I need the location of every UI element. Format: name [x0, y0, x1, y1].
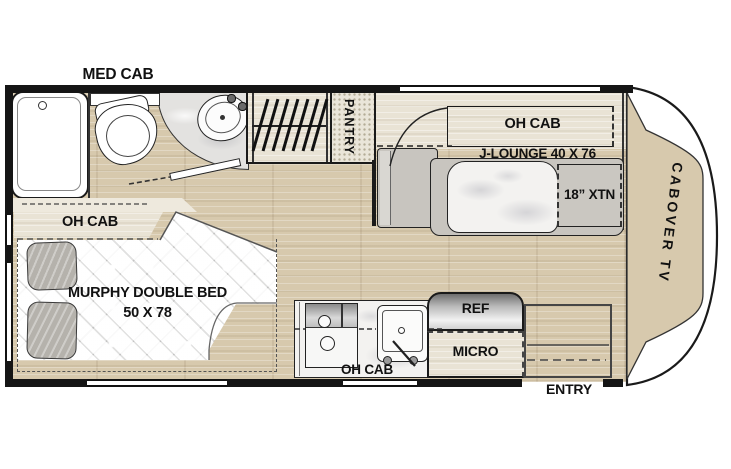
kitchen-oh-cab-label: OH CAB — [329, 363, 405, 377]
top-window — [400, 85, 600, 93]
pantry-wall-extension — [372, 160, 376, 226]
couch-left-armrest — [380, 151, 391, 225]
cooktop-control-panel — [306, 304, 357, 328]
j-lounge-label: J-LOUNGE 40 X 76 — [455, 147, 620, 161]
rv-floor-plan: CABOVER TV PANTRY 18” XTN OH CAB J-LOUNG… — [0, 0, 731, 469]
bed-oh-cab-label: OH CAB — [30, 215, 150, 230]
shower-inner-pan — [17, 97, 81, 191]
kitchen-counter-edge — [299, 302, 300, 376]
shower-drain — [38, 101, 47, 110]
pantry-label: PANTRY — [342, 95, 355, 159]
burner — [320, 336, 335, 351]
bottom-window-bed — [87, 379, 227, 387]
micro-label: MICRO — [437, 344, 514, 359]
bottom-window-kitchen — [343, 379, 417, 387]
entry-label: ENTRY — [536, 382, 602, 397]
bath-sink-drain — [220, 115, 225, 120]
bottom-wall — [5, 379, 522, 387]
entry-wall-stub — [603, 379, 623, 387]
top-wall-right — [600, 85, 633, 93]
bath-divider-wall — [88, 92, 90, 199]
lounge-oh-cab-label: OH CAB — [460, 117, 605, 132]
left-window-upper — [5, 215, 13, 245]
murphy-bed-size-label: 50 X 78 — [40, 306, 255, 321]
left-window-lower — [5, 263, 13, 361]
entry-steps — [524, 304, 612, 378]
bath-faucet — [227, 94, 236, 103]
kitchen-faucet-handle — [409, 356, 418, 365]
toilet-seat — [106, 115, 150, 157]
ref-label: REF — [437, 301, 514, 316]
extension-label: 18” XTN — [558, 188, 621, 202]
top-wall-left — [5, 85, 400, 93]
cooktop-panel-divider — [341, 304, 343, 328]
bed-shelf — [13, 198, 197, 212]
wardrobe-left-line — [252, 92, 254, 162]
murphy-bed-label: MURPHY DOUBLE BED — [40, 286, 255, 301]
pillow — [26, 241, 78, 291]
lounge-table — [447, 161, 558, 233]
burner — [318, 315, 331, 328]
kitchen-sink-drain — [398, 327, 405, 334]
med-cab-label: MED CAB — [68, 67, 168, 83]
